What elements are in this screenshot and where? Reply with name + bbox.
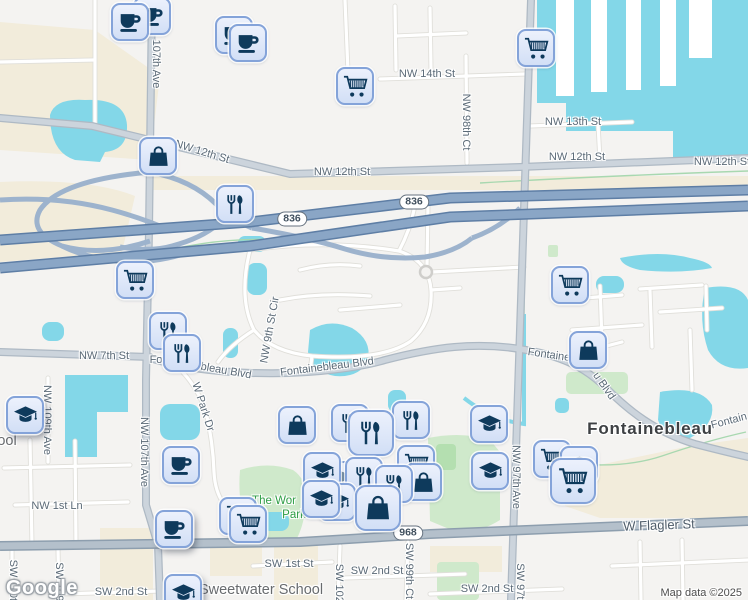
cart-icon (558, 466, 588, 496)
cup-marker[interactable] (111, 3, 149, 41)
cart-marker[interactable] (550, 458, 596, 504)
rest-marker[interactable] (216, 185, 254, 223)
school-icon (13, 403, 38, 428)
bag-icon (146, 144, 171, 169)
school-icon (477, 412, 502, 437)
cup-icon (169, 453, 194, 478)
rest-icon (170, 341, 195, 366)
cup-icon (162, 517, 187, 542)
bag-marker[interactable] (139, 137, 177, 175)
bag-icon (285, 413, 310, 438)
cup-marker[interactable] (155, 510, 193, 548)
map-attribution: Map data ©2025 (661, 587, 743, 599)
school-marker[interactable] (470, 405, 508, 443)
cart-icon (524, 36, 549, 61)
school-marker[interactable] (6, 396, 44, 434)
cup-icon (118, 10, 143, 35)
rest-icon (223, 192, 248, 217)
cart-icon (236, 512, 261, 537)
cart-marker[interactable] (116, 261, 154, 299)
google-logo[interactable]: Google (6, 577, 78, 600)
rest-icon (356, 418, 386, 448)
rest-marker[interactable] (163, 334, 201, 372)
school-icon (309, 487, 334, 512)
cart-marker[interactable] (336, 67, 374, 105)
cup-marker[interactable] (229, 24, 267, 62)
rest-marker[interactable] (348, 410, 394, 456)
cart-icon (558, 273, 583, 298)
bag-marker[interactable] (355, 485, 401, 531)
school-icon (478, 459, 503, 484)
bag-icon (576, 338, 601, 363)
cart-marker[interactable] (517, 29, 555, 67)
bag-marker[interactable] (278, 406, 316, 444)
rest-marker[interactable] (392, 401, 430, 439)
school-marker[interactable] (302, 480, 340, 518)
cart-marker[interactable] (551, 266, 589, 304)
rest-icon (399, 408, 424, 433)
cup-marker[interactable] (162, 446, 200, 484)
school-icon (171, 581, 196, 600)
cart-icon (123, 268, 148, 293)
bag-marker[interactable] (569, 331, 607, 369)
cart-marker[interactable] (229, 505, 267, 543)
bag-icon (411, 470, 436, 495)
school-marker[interactable] (164, 574, 202, 600)
bag-icon (363, 493, 393, 523)
school-marker[interactable] (471, 452, 509, 490)
cart-icon (343, 74, 368, 99)
map-canvas[interactable]: NW 14th StNW 98th CtNW 13th StNW 12th St… (0, 0, 748, 600)
cup-icon (236, 31, 261, 56)
